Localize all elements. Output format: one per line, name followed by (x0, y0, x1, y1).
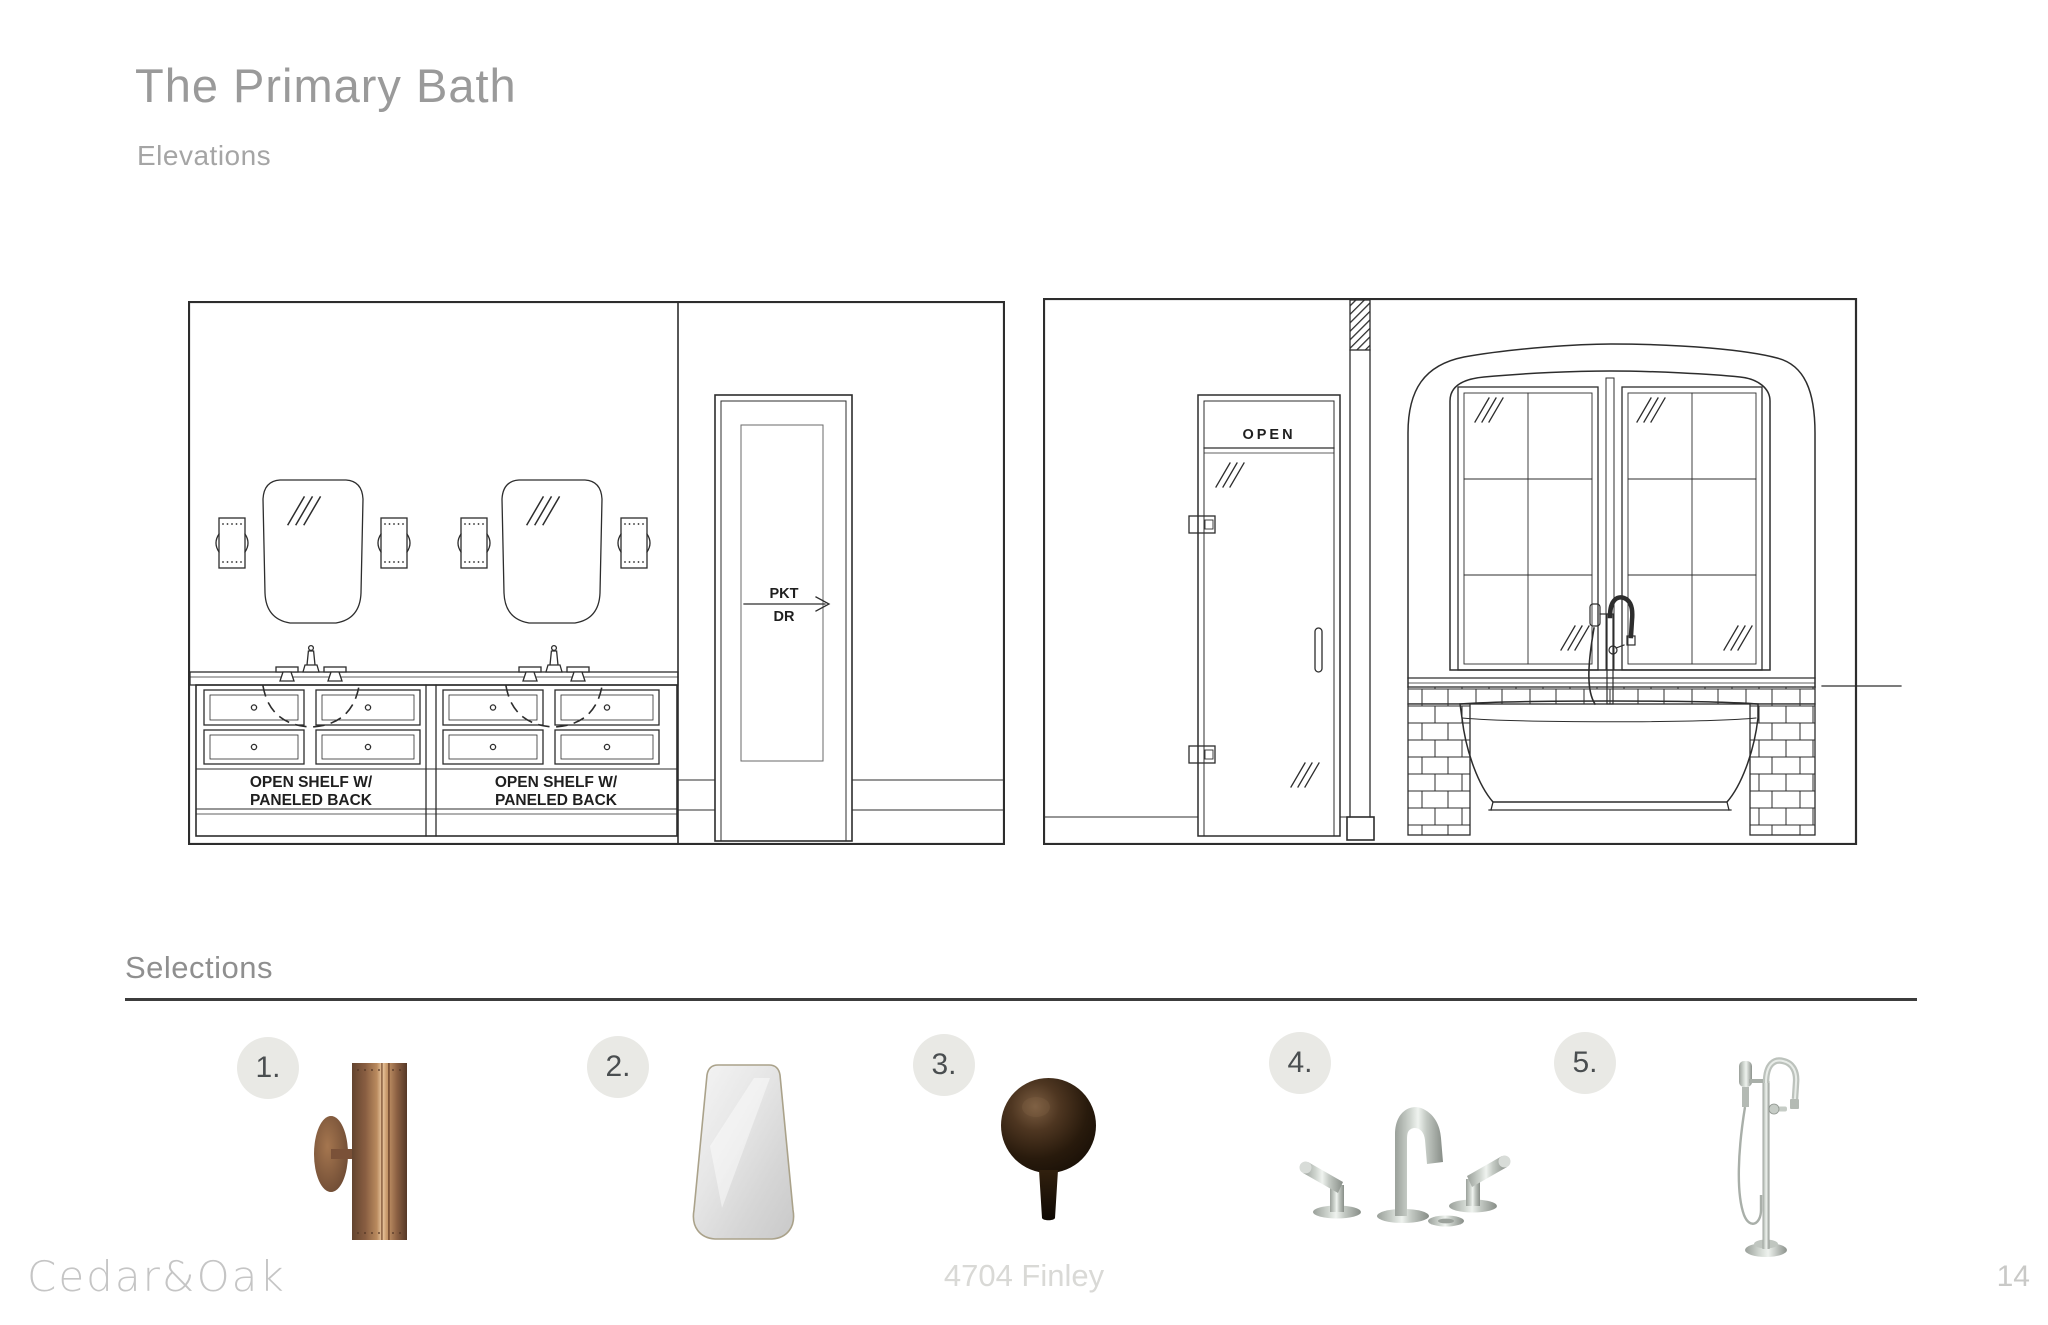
project-name: 4704 Finley (824, 1258, 1224, 1294)
page-title: The Primary Bath (135, 58, 517, 113)
elevation-right-drawing: OPEN (1043, 298, 1905, 845)
selection-badge-2: 2. (587, 1036, 649, 1098)
freestanding-tub (1460, 701, 1758, 810)
selection-badge-1: 1. (237, 1037, 299, 1099)
brand-logo: Cedar&Oak (27, 1252, 286, 1301)
arched-window (1408, 371, 1815, 683)
pocket-door-label-line2: DR (774, 609, 795, 625)
shower-door (1189, 395, 1340, 836)
shower-door-label: OPEN (1242, 427, 1295, 443)
hand-shower (1739, 1061, 1763, 1224)
vanity-sconces (216, 518, 650, 568)
door-hinge-bottom (1189, 746, 1215, 763)
selections-divider (125, 998, 1917, 1001)
faucet-image (1290, 1100, 1517, 1227)
tub-filler-image (1730, 1045, 1805, 1260)
faucet-handle-right (1449, 1156, 1511, 1213)
door-handle (1315, 628, 1322, 672)
open-shelf-label-2-line1: OPEN SHELF W/ (495, 774, 618, 791)
mirror-image (680, 1062, 807, 1243)
wall-column (1347, 300, 1374, 840)
arched-opening (1408, 344, 1815, 687)
knob-image (1000, 1077, 1097, 1222)
vanity-faucets (276, 646, 589, 681)
selection-badge-3: 3. (913, 1034, 975, 1096)
page-subtitle: Elevations (137, 140, 271, 172)
selection-badge-5: 5. (1554, 1032, 1616, 1094)
open-shelf-label-1-line2: PANELED BACK (250, 792, 373, 809)
open-shelf-label-2-line2: PANELED BACK (495, 792, 618, 809)
page-number: 14 (1950, 1260, 2030, 1294)
filler-handle (1769, 1104, 1787, 1114)
faucet-handle-left (1300, 1162, 1362, 1219)
pocket-door-label-line1: PKT (770, 586, 799, 602)
faucet-spout (1377, 1107, 1443, 1223)
page: The Primary Bath Elevations (0, 0, 2048, 1325)
door-hinge-top (1189, 516, 1215, 533)
vanity-mirrors (263, 480, 602, 623)
elevation-left-drawing: OPEN SHELF W/ PANELED BACK OPEN SHELF W/… (188, 301, 1005, 845)
undermount-sink-outlines (263, 686, 602, 727)
double-vanity (190, 672, 678, 836)
copper-sconce-image (312, 1062, 407, 1242)
pocket-door (679, 395, 1003, 841)
selections-heading: Selections (125, 950, 273, 986)
brick-surround (1408, 687, 1815, 835)
left-drawing-border (189, 302, 1004, 844)
open-shelf-label-1-line1: OPEN SHELF W/ (250, 774, 373, 791)
selection-badge-4: 4. (1269, 1032, 1331, 1094)
faucet-drain (1428, 1216, 1464, 1227)
